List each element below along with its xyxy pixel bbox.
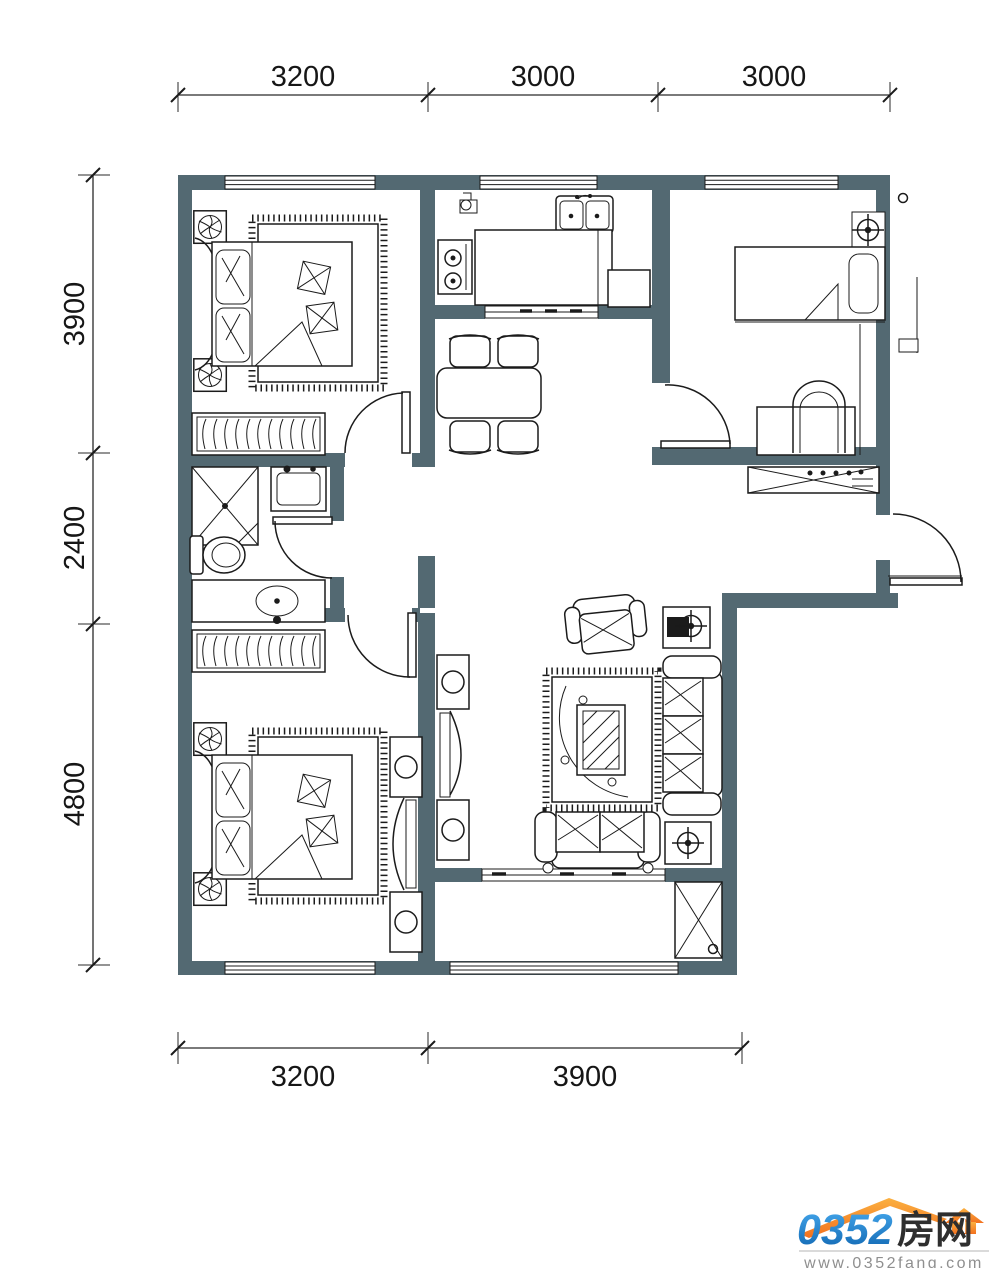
- kitchen-counter: [475, 230, 612, 305]
- logo-suffix: 房网: [897, 1208, 973, 1252]
- dining-table: [437, 368, 541, 418]
- wardrobe: [192, 413, 325, 455]
- double-bed: [195, 751, 352, 883]
- tv-cabinet: [437, 655, 469, 860]
- ceiling-fan-icon: [194, 723, 227, 756]
- sofa-2seat: [535, 812, 660, 873]
- entry-door: [888, 514, 962, 585]
- floor-drain-icon: [460, 193, 477, 213]
- toilet: [190, 536, 245, 574]
- sliding-door: [485, 306, 598, 318]
- window: [225, 962, 375, 974]
- sofa-3seat: [663, 656, 722, 815]
- bedroom2-furniture: [735, 194, 918, 456]
- dim-left-3: 4800: [59, 762, 91, 827]
- side-table: [665, 822, 711, 864]
- storage-cabinet: [675, 882, 722, 958]
- ceiling-lamp: [852, 212, 885, 247]
- bedroom1-door: [345, 392, 410, 453]
- logo-website: www.0352fang.com: [803, 1255, 984, 1268]
- single-bed: [735, 247, 885, 322]
- balcony-furniture: [675, 882, 722, 958]
- lamp-side-table: [663, 607, 710, 648]
- double-bed: [195, 238, 352, 370]
- living-room-furniture: [437, 593, 722, 873]
- floor-plan-drawing: 3200 3000 3000 3900 2400 4800 3200 3900 …: [0, 0, 1000, 1268]
- washing-machine: [271, 466, 326, 512]
- coffee-table: [577, 705, 625, 775]
- dining-chair: [497, 335, 539, 367]
- dim-left-1: 3900: [59, 282, 91, 347]
- fridge: [608, 270, 650, 307]
- dining-chair: [449, 335, 491, 367]
- window: [450, 962, 678, 974]
- dim-bottom-2: 3900: [553, 1061, 618, 1093]
- desk: [757, 407, 855, 455]
- dim-bottom-1: 3200: [271, 1061, 336, 1093]
- shoe-cabinet: [748, 467, 879, 493]
- dim-top-3: 3000: [742, 61, 807, 93]
- window: [225, 176, 375, 189]
- dim-top-2: 3000: [511, 61, 576, 93]
- kitchen-sink: [556, 194, 613, 233]
- window: [705, 176, 838, 189]
- dining-furniture: [437, 335, 541, 454]
- dim-top-1: 3200: [271, 61, 336, 93]
- kitchen-furniture: [438, 193, 650, 307]
- bedroom3-furniture: [192, 630, 422, 952]
- bathroom-sink: [192, 580, 325, 624]
- logo-number: 0352: [797, 1206, 893, 1254]
- bathroom-furniture: [190, 466, 326, 625]
- dining-chair: [449, 421, 491, 454]
- brand-logo: 0352 房网 www.0352fang.com: [797, 1198, 989, 1268]
- drain-pipe-icon: [899, 194, 908, 203]
- stove: [438, 240, 472, 294]
- ac-platform: [899, 277, 918, 353]
- sliding-door: [482, 869, 665, 881]
- armchair: [563, 593, 648, 656]
- bedroom2-door: [661, 385, 730, 448]
- dim-left-2: 2400: [59, 506, 91, 571]
- bedroom3-door: [348, 613, 416, 677]
- floor-plan-page: 3200 3000 3000 3900 2400 4800 3200 3900 …: [0, 0, 1000, 1268]
- entry-furniture: [748, 467, 879, 493]
- bathroom-door: [273, 517, 332, 578]
- shower: [192, 467, 258, 545]
- dining-chair: [497, 421, 539, 454]
- wardrobe: [192, 630, 325, 672]
- window: [480, 176, 597, 189]
- tv-cabinet: [390, 737, 422, 952]
